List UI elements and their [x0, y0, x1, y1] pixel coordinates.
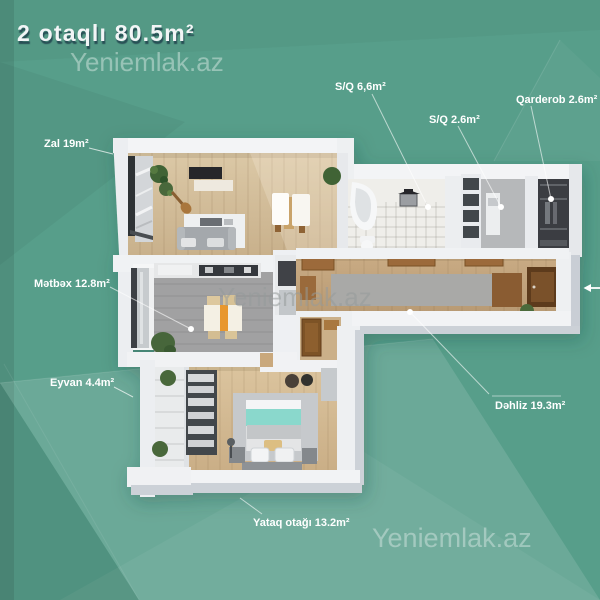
svg-text:Qarderob 2.6m²: Qarderob 2.6m² [516, 94, 598, 106]
svg-text:Yeniemlak.az: Yeniemlak.az [70, 47, 224, 77]
svg-text:S/Q 2.6m²: S/Q 2.6m² [429, 114, 480, 126]
svg-text:Dəhliz 19.3m²: Dəhliz 19.3m² [495, 400, 566, 412]
svg-text:Yataq otağı 13.2m²: Yataq otağı 13.2m² [253, 517, 350, 529]
svg-text:S/Q 6,6m²: S/Q 6,6m² [335, 81, 386, 93]
svg-text:Mətbəx 12.8m²: Mətbəx 12.8m² [34, 278, 110, 290]
svg-text:2 otaqlı 80.5m²: 2 otaqlı 80.5m² [17, 20, 195, 46]
svg-text:Zal 19m²: Zal 19m² [44, 138, 89, 150]
svg-text:Eyvan 4.4m²: Eyvan 4.4m² [50, 377, 115, 389]
svg-text:Yeniemlak.az: Yeniemlak.az [372, 523, 532, 553]
svg-text:Yeniemlak.az: Yeniemlak.az [218, 282, 372, 312]
